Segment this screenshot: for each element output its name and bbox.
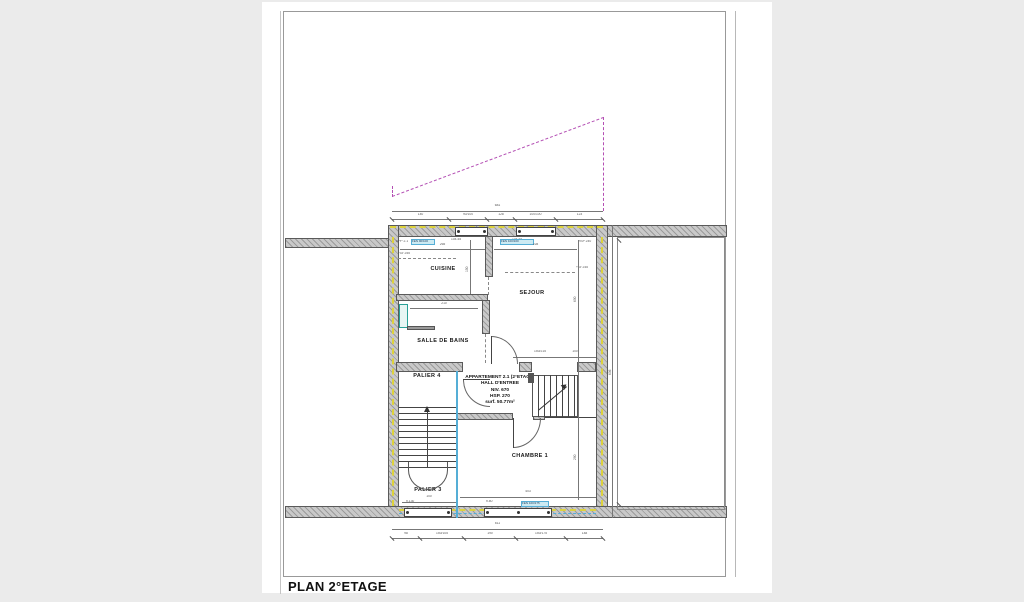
dim-top-total: 681 [439, 204, 555, 207]
wall-bath-right [482, 300, 490, 334]
window-bottom-1 [404, 508, 452, 517]
door-opening-bath [485, 334, 486, 363]
dim-line-palier3 [402, 502, 456, 503]
shower-fixture [399, 304, 408, 328]
window-jamb-dot [518, 230, 521, 233]
opening-cuisine [488, 277, 489, 295]
stair-landing-edge [545, 417, 596, 418]
stair-tread [562, 375, 563, 417]
dim-chambre-height: 290 [574, 454, 577, 460]
dim-sejour-width: 228 [513, 243, 559, 246]
window-chip-bottom: FEN 100/175 [521, 501, 549, 507]
level-note-left: +Gr 255 [398, 252, 410, 255]
dim-bottom-total: 611 [439, 522, 555, 525]
frame-line-right [735, 11, 736, 577]
dim-palier3-width: 100 [414, 495, 444, 498]
stair-right-pier [528, 373, 534, 383]
window-top-2 [516, 227, 556, 236]
window-jamb-dot [447, 511, 450, 514]
dim-line-bottom-segments [392, 538, 603, 539]
stair-tread [568, 375, 569, 417]
room-label-palier4: PALIER 4 [403, 373, 451, 379]
insulation-top [390, 226, 603, 228]
door-leaf-sejour [491, 336, 492, 364]
stair-tread [544, 375, 545, 417]
wall-hall-chambre [457, 413, 513, 420]
room-label-sejour: SEJOUR [508, 290, 556, 296]
window-sill-label-1: 104.45 [451, 238, 461, 241]
apartment-boundary-line [456, 371, 458, 518]
window-jamb-dot [486, 511, 489, 514]
dim-top-seg-3: 128 [493, 213, 508, 216]
stair-up-arrow [424, 406, 430, 412]
window-sill-label-4: h.80 [486, 500, 492, 503]
room-label-salle-de-bains: SALLE DE BAINS [405, 338, 481, 344]
dim-line-chambre [460, 497, 596, 498]
insulation-left [392, 237, 394, 506]
wall-hall-top-a [396, 362, 463, 372]
dim-bottom-seg-2: 150/105 [430, 532, 454, 535]
dim-line-bottom-total [392, 529, 603, 530]
window-jamb-dot [551, 230, 554, 233]
dim-sejour-height: 600 [574, 296, 577, 302]
dim-bottom-seg-1: 98 [398, 532, 413, 535]
dim-top-seg-1: 140 [405, 213, 436, 216]
window-jamb-dot [457, 230, 460, 233]
dim-right-side: 606 [609, 369, 612, 375]
level-dash-cuisine [398, 258, 456, 259]
window-jamb-dot [517, 511, 520, 514]
dim-line-sejour [494, 249, 577, 250]
dim-cuisine-height: 150 [466, 266, 469, 272]
dim-top-seg-2: 90/100 [458, 213, 479, 216]
plan-title: PLAN 2°ETAGE [288, 579, 387, 594]
dim-cuisine-width: 265 [419, 243, 466, 246]
hsp-right-note: HSP 240 [578, 240, 591, 243]
insulation-right [601, 237, 603, 506]
dim-bottom-seg-4: 150/175 [527, 532, 555, 535]
dim-partition: 76 [484, 243, 493, 246]
dim-top-seg-4: 100/100 [524, 213, 547, 216]
room-label-cuisine: CUISINE [420, 266, 466, 272]
dim-line-cuisine-v [470, 240, 471, 294]
floor-plan-canvas: PLAN 2°ETAGE 681 140 90/100 128 100/100 … [0, 0, 1024, 602]
window-jamb-dot [483, 230, 486, 233]
dim-line-inner-right [578, 240, 579, 500]
door-leaf-chambre [513, 418, 514, 448]
dim-chambre-width: 403 [491, 490, 566, 493]
stair-tread [550, 375, 551, 417]
room-label-chambre1: CHAMBRE 1 [500, 453, 560, 459]
wall-hall-top-c [577, 362, 596, 372]
roof-outline-right [603, 117, 604, 211]
stair-tread [574, 375, 575, 417]
dim-line-bath [410, 308, 478, 309]
wall-cuisine-bath [396, 294, 488, 301]
dim-bottom-seg-3: 190 [476, 532, 505, 535]
door-leaf-entry [463, 379, 490, 380]
frame-line-left [280, 11, 281, 594]
dim-line-door [513, 357, 596, 358]
apartment-surface: surf. 50.77m² [459, 400, 541, 406]
dim-line-top-total [392, 211, 603, 212]
window-jamb-dot [547, 511, 550, 514]
apartment-ref-note: APP 2.1 [396, 240, 408, 243]
wall-hall-top-b [519, 362, 532, 372]
level-dash-sejour [505, 272, 575, 273]
window-jamb-dot [406, 511, 409, 514]
wall-left-corridor [285, 238, 389, 248]
dim-top-seg-5: 123 [567, 213, 593, 216]
window-bottom-2 [484, 508, 552, 517]
dim-bottom-seg-5: 148 [574, 532, 594, 535]
dim-line-cuisine [400, 249, 485, 250]
neighbor-room-outline [617, 237, 725, 510]
stair-center-line [427, 407, 428, 468]
dim-bath-width: 210 [425, 302, 462, 305]
dim-line-top-segments [392, 219, 603, 220]
washbasin-counter [407, 326, 435, 330]
dim-door-note: 150/215 [529, 350, 551, 353]
chip-label: FEN 100/175 [522, 502, 535, 505]
dim-door-note2: 100 [567, 350, 584, 353]
window-top-1 [455, 227, 488, 236]
